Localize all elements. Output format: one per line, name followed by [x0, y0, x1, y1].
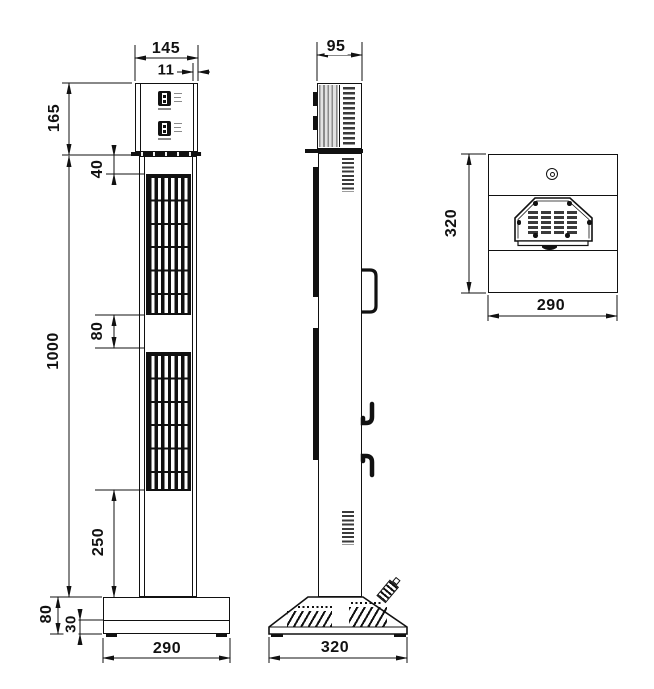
dim-label-80-gap: 80 — [90, 320, 106, 343]
plate-vent-row — [528, 221, 577, 224]
side-base-dots-left — [298, 606, 332, 608]
plate-screw-dot — [565, 233, 570, 238]
plate-tab — [542, 246, 557, 251]
plate-vent-row — [528, 216, 577, 219]
side-base-foot-right — [394, 634, 406, 637]
dim-label-95: 95 — [325, 39, 348, 55]
linework-layer — [0, 0, 654, 689]
top-view-fan-plate — [515, 198, 592, 250]
plate-screw-dot — [567, 201, 572, 206]
dim-label-11: 11 — [156, 63, 177, 78]
technical-drawing: 145 11 165 40 1000 80 250 80 30 290 95 3… — [0, 0, 654, 689]
cable-hook-lower-icon — [363, 456, 372, 475]
dim-label-40: 40 — [90, 158, 106, 181]
dim-label-320-top: 320 — [444, 207, 460, 239]
dim-label-30: 30 — [64, 613, 79, 635]
dim-label-1000: 1000 — [46, 330, 62, 372]
dim-label-290-top: 290 — [535, 298, 567, 314]
dim-label-250: 250 — [91, 526, 107, 558]
dim-label-80-base: 80 — [39, 603, 55, 626]
side-dimensions — [269, 42, 407, 663]
cable-hook-upper-icon — [363, 404, 372, 423]
carry-handle — [362, 270, 376, 312]
plate-screw-dot — [533, 233, 538, 238]
dim-label-165: 165 — [47, 102, 63, 134]
plate-screw-dot — [517, 220, 522, 225]
dim-label-145: 145 — [150, 41, 182, 57]
plate-vent-row — [528, 226, 577, 229]
side-base-dots-right — [351, 602, 381, 604]
plate-screw-dot — [587, 220, 592, 225]
side-base-vent-slats-right — [349, 607, 387, 627]
side-base-vent-slats-left — [287, 611, 332, 627]
dim-label-320-side: 320 — [319, 640, 351, 656]
plate-vent-row — [528, 211, 577, 214]
side-base-foot-left — [271, 634, 283, 637]
plate-screw-dot — [533, 201, 538, 206]
dim-label-290-front: 290 — [151, 641, 183, 657]
front-dimensions — [50, 45, 230, 663]
